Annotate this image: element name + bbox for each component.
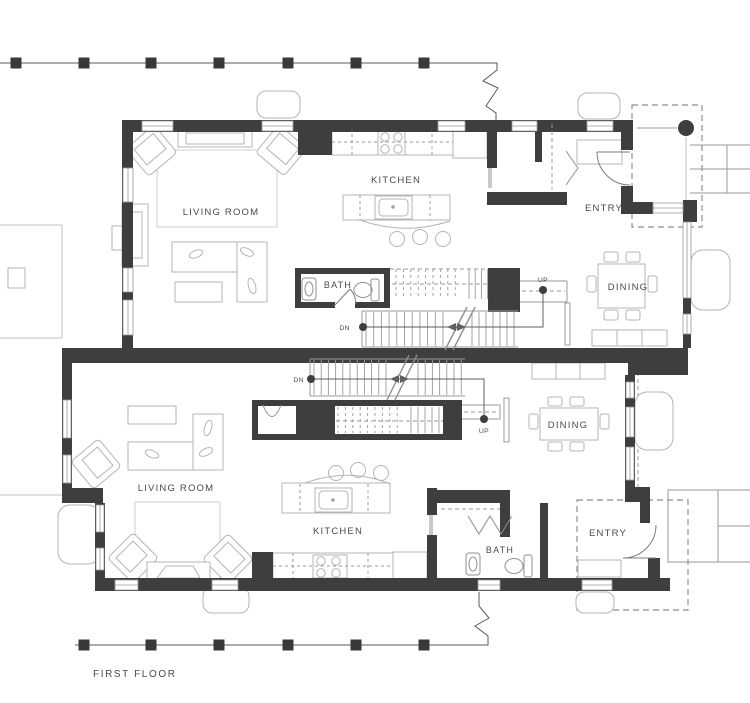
- room-label-b-bath: BATH: [486, 545, 514, 555]
- bay-left-bottom-unit: [58, 505, 100, 564]
- sofa-table: [128, 406, 176, 424]
- fence-post: [419, 640, 430, 651]
- chair: [548, 397, 562, 406]
- fence-post: [283, 58, 294, 69]
- fence-post: [146, 640, 157, 651]
- toilet: [354, 283, 372, 298]
- nav-label-a-up: UP: [538, 277, 548, 284]
- chair: [604, 310, 618, 320]
- bath-sink: [466, 553, 480, 575]
- chair: [604, 252, 618, 262]
- railing: [504, 398, 509, 442]
- bar-stool: [390, 232, 405, 247]
- bifold-closet-top: [566, 151, 578, 185]
- chair: [548, 442, 562, 451]
- chair: [600, 414, 609, 429]
- room-label-b-entry: ENTRY: [589, 528, 627, 539]
- tv-console: [147, 562, 210, 580]
- nav-dot-a-dn: [359, 323, 367, 331]
- room-label-b-dining: DINING: [548, 420, 588, 431]
- room-label-b-living: LIVING ROOM: [138, 483, 215, 494]
- room-label-a-kitchen: KITCHEN: [371, 175, 421, 186]
- bar-stool: [413, 230, 428, 245]
- fence-post: [351, 58, 362, 69]
- unit-b-bath-fixtures: [466, 553, 532, 577]
- sideboard: [532, 363, 605, 379]
- bar-stool: [436, 232, 451, 247]
- unit-a-dining-furniture: [587, 252, 667, 346]
- fence-post: [351, 640, 362, 651]
- plan-title: FIRST FLOOR: [93, 669, 177, 680]
- unit-b-dining-furniture: [529, 363, 609, 451]
- bath-door-top: [334, 289, 356, 306]
- party-wall: [62, 348, 688, 375]
- fence-post: [79, 640, 90, 651]
- porch-column: [678, 120, 694, 136]
- room-label-a-entry: ENTRY: [585, 203, 623, 214]
- bar-stool: [374, 466, 389, 481]
- armchair: [71, 439, 122, 490]
- cased-opening-jamb: [488, 168, 492, 188]
- chair: [587, 276, 596, 292]
- bay-dining-bottom-unit: [635, 392, 673, 450]
- bar-stool: [329, 466, 344, 481]
- front-steps-bottom: [668, 490, 750, 562]
- fence-break-line: [456, 63, 498, 120]
- coffee-table: [175, 282, 222, 302]
- entry-door-top: [597, 152, 630, 185]
- nav-label-b-dn: DN: [293, 377, 304, 384]
- cased-opening-jamb: [429, 515, 433, 535]
- nav-label-a-dn: DN: [339, 325, 350, 332]
- entry-door-bottom: [623, 525, 656, 558]
- room-labels: KITCHENENTRYLIVING ROOMBATHDININGDININGL…: [138, 175, 649, 555]
- chair: [648, 276, 657, 292]
- chair: [570, 397, 584, 406]
- bar-stool: [351, 463, 366, 478]
- fence-post: [11, 58, 22, 69]
- refrigerator: [393, 552, 427, 580]
- sideboard: [592, 330, 667, 346]
- nav-label-b-up: UP: [479, 428, 489, 435]
- chaise: [193, 414, 223, 470]
- room-label-b-kitchen: KITCHEN: [313, 526, 363, 537]
- entry-stoop-bottom: [576, 592, 614, 613]
- fence-break-line: [456, 592, 489, 645]
- entry-mat: [578, 560, 621, 577]
- room-label-a-bath: BATH: [324, 280, 352, 290]
- room-label-a-living: LIVING ROOM: [183, 207, 260, 218]
- chair: [570, 442, 584, 451]
- nav-dot-a-up: [539, 286, 547, 294]
- chair: [529, 414, 538, 429]
- nav-dot-b-up: [480, 415, 488, 423]
- chair: [626, 310, 640, 320]
- breakfast-bar: [360, 220, 450, 228]
- room-label-a-dining: DINING: [608, 282, 648, 293]
- floor-plan-canvas: KITCHENENTRYLIVING ROOMBATHDININGDININGL…: [0, 0, 750, 703]
- closet-door-curve: [263, 405, 281, 417]
- chair: [626, 252, 640, 262]
- front-steps-top: [690, 145, 750, 193]
- fence-post: [283, 640, 294, 651]
- fence-top: [0, 58, 498, 121]
- fence-bottom: [75, 592, 489, 651]
- railing: [565, 303, 570, 345]
- fence-post: [79, 58, 90, 69]
- site-lines: [0, 225, 62, 495]
- fence-post: [214, 640, 225, 651]
- bench-top-left: [257, 91, 300, 118]
- bench-top-right: [578, 93, 620, 119]
- bay-dining-top-unit: [691, 250, 730, 310]
- first-floor-plan: KITCHENENTRYLIVING ROOMBATHDININGDININGL…: [0, 0, 750, 703]
- fence-post: [214, 58, 225, 69]
- fence-post: [146, 58, 157, 69]
- toilet: [505, 559, 523, 574]
- fence-post: [419, 58, 430, 69]
- bath-sink: [302, 278, 316, 300]
- nav-dot-b-dn: [307, 375, 315, 383]
